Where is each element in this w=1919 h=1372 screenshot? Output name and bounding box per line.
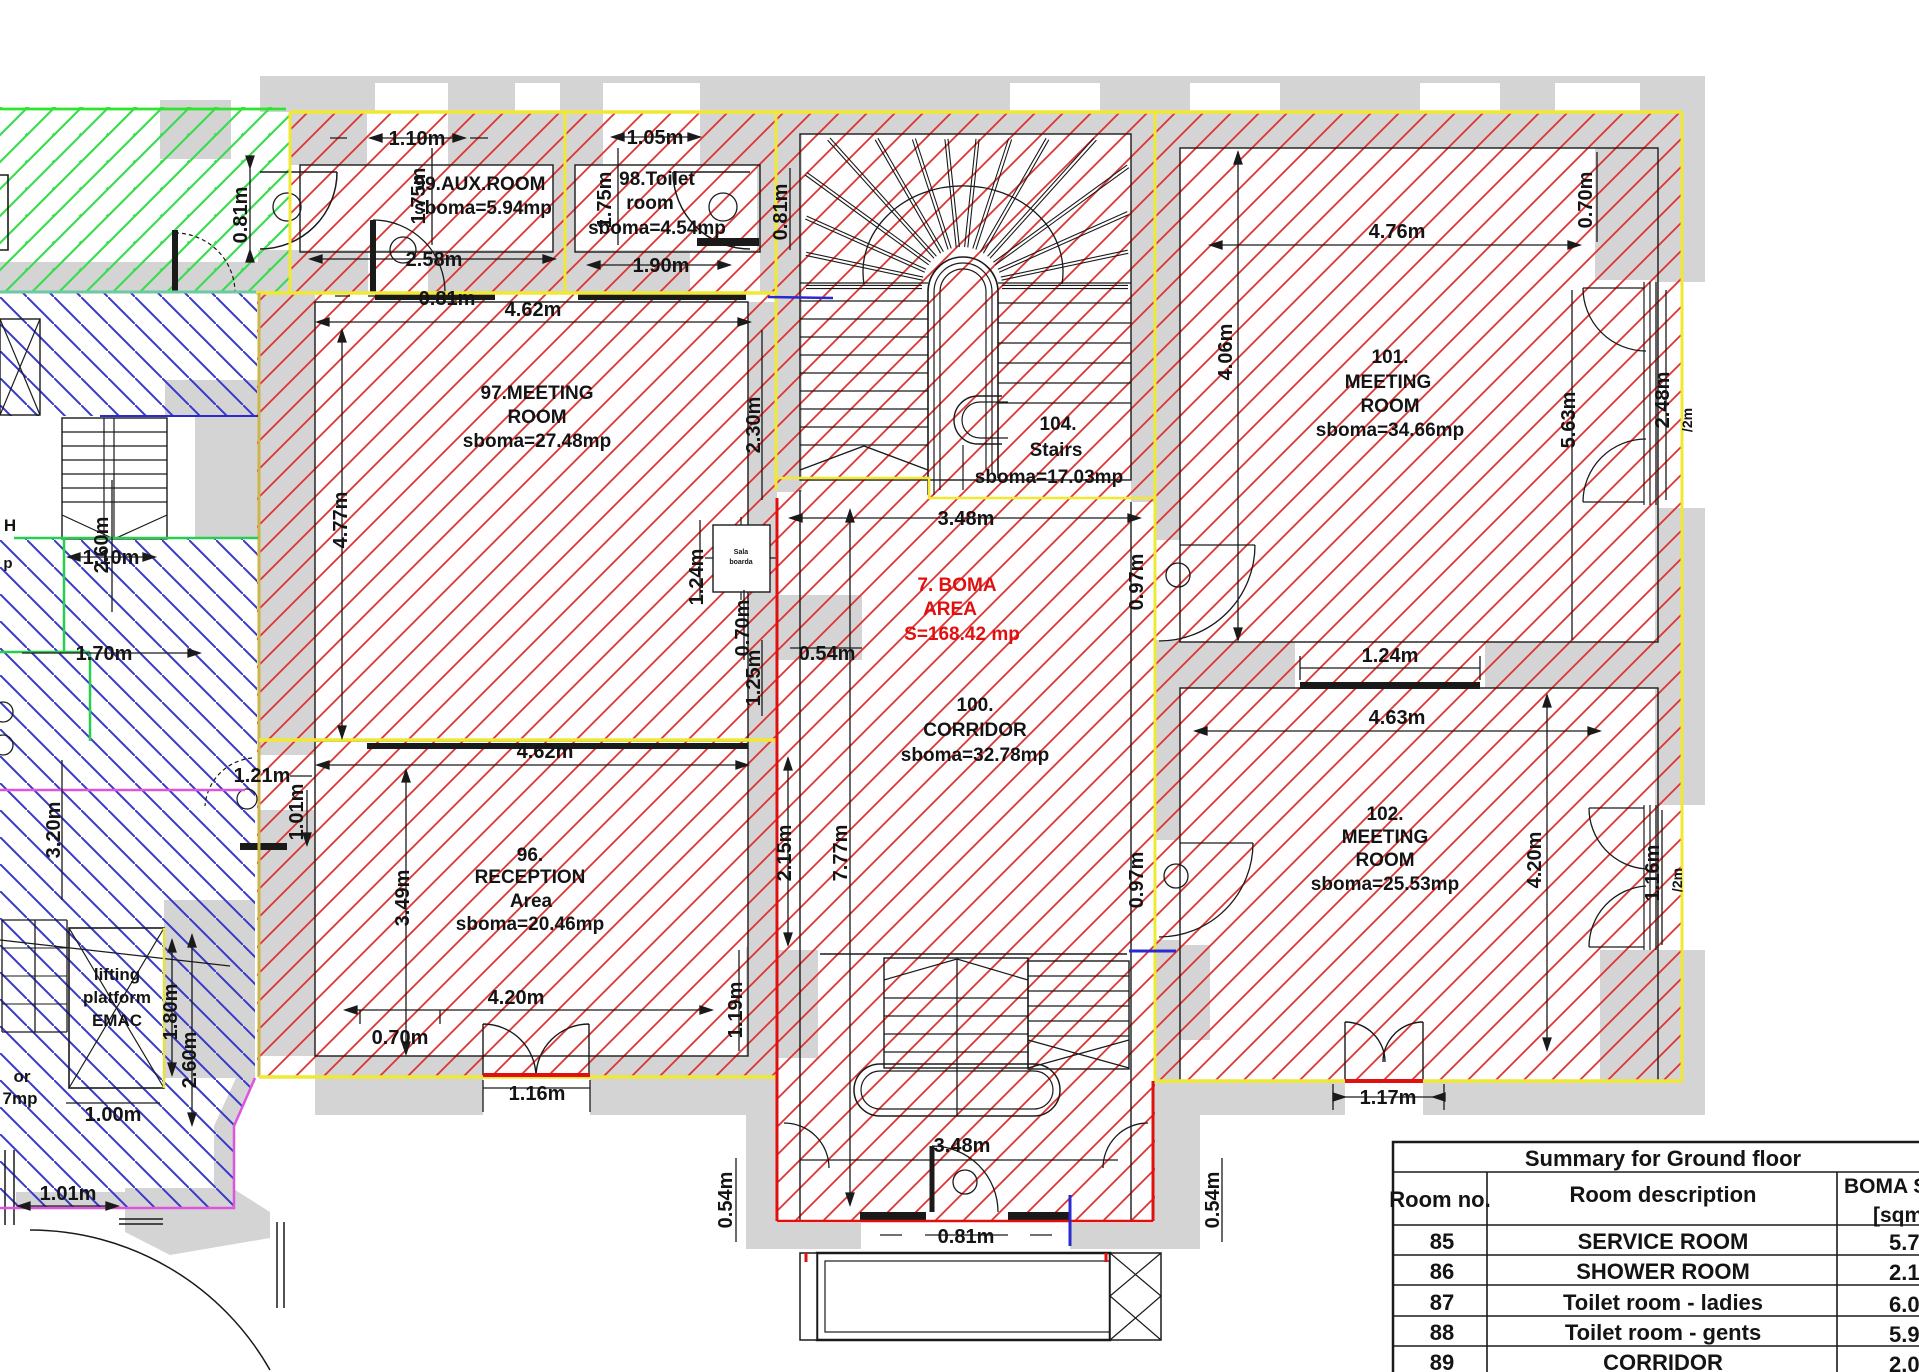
svg-text:5.94: 5.94 xyxy=(1889,1322,1919,1347)
svg-text:2.60m: 2.60m xyxy=(179,1032,201,1089)
svg-text:1.70m: 1.70m xyxy=(76,643,133,665)
svg-text:4.62m: 4.62m xyxy=(517,741,574,763)
svg-text:1.01m: 1.01m xyxy=(286,784,308,841)
svg-text:0.54m: 0.54m xyxy=(1202,1172,1224,1229)
svg-text:0.81m: 0.81m xyxy=(230,187,252,244)
svg-text:0.70m: 0.70m xyxy=(732,600,754,657)
svg-text:1.16m: 1.16m xyxy=(509,1083,566,1105)
svg-text:2.00: 2.00 xyxy=(1889,1352,1919,1372)
svg-text:4.20m: 4.20m xyxy=(488,987,545,1009)
svg-text:sboma=32.78mp: sboma=32.78mp xyxy=(901,745,1049,766)
svg-text:Toilet room - gents: Toilet room - gents xyxy=(1565,1320,1761,1345)
svg-text:2.58m: 2.58m xyxy=(406,249,463,271)
svg-text:4.76m: 4.76m xyxy=(1369,221,1426,243)
svg-text:SERVICE ROOM: SERVICE ROOM xyxy=(1578,1229,1749,1254)
svg-text:0.54m: 0.54m xyxy=(799,643,856,665)
svg-text:96.: 96. xyxy=(517,845,543,866)
svg-text:1.24m: 1.24m xyxy=(1362,645,1419,667)
svg-text:MEETING: MEETING xyxy=(1345,372,1432,393)
svg-text:1.75m: 1.75m xyxy=(594,172,616,229)
svg-text:Sala: Sala xyxy=(734,549,749,556)
svg-text:boarda: boarda xyxy=(729,559,752,566)
svg-text:2.30m: 2.30m xyxy=(743,397,765,454)
svg-text:RECEPTION: RECEPTION xyxy=(475,867,586,888)
svg-text:1.05m: 1.05m xyxy=(627,127,684,149)
svg-text:98.Toilet: 98.Toilet xyxy=(619,169,695,190)
svg-text:3.48m: 3.48m xyxy=(934,1135,991,1157)
svg-text:2.60m: 2.60m xyxy=(91,517,113,574)
svg-text:2.15: 2.15 xyxy=(1889,1260,1919,1285)
svg-text:1.24m: 1.24m xyxy=(686,549,708,606)
svg-text:4.63m: 4.63m xyxy=(1369,707,1426,729)
svg-text:87: 87 xyxy=(1430,1290,1454,1315)
svg-text:7. BOMA: 7. BOMA xyxy=(917,575,996,596)
svg-text:sboma=34.66mp: sboma=34.66mp xyxy=(1316,420,1464,441)
svg-text:2.48m: 2.48m xyxy=(1652,372,1674,429)
svg-text:4.62m: 4.62m xyxy=(505,299,562,321)
svg-text:/2m: /2m xyxy=(1669,868,1685,892)
svg-text:[sqm: [sqm xyxy=(1873,1204,1919,1227)
svg-text:7.77m: 7.77m xyxy=(830,825,852,882)
svg-text:CORRIDOR: CORRIDOR xyxy=(1603,1350,1723,1372)
svg-text:ROOM: ROOM xyxy=(507,407,566,428)
svg-text:Summary for Ground floor: Summary for Ground floor xyxy=(1525,1146,1802,1171)
svg-text:0.54m: 0.54m xyxy=(715,1172,737,1229)
svg-text:sboma=5.94mp: sboma=5.94mp xyxy=(414,198,552,219)
svg-text:97.MEETING: 97.MEETING xyxy=(481,383,594,404)
svg-text:0.97m: 0.97m xyxy=(1126,852,1148,909)
svg-text:1.00m: 1.00m xyxy=(85,1104,142,1126)
svg-text:1.01m: 1.01m xyxy=(40,1183,97,1205)
svg-text:5.63m: 5.63m xyxy=(1558,392,1580,449)
svg-text:101.: 101. xyxy=(1372,347,1409,368)
svg-text:0.70m: 0.70m xyxy=(1575,172,1597,229)
svg-text:0.70m: 0.70m xyxy=(372,1027,429,1049)
svg-text:room: room xyxy=(626,193,674,214)
svg-text:86: 86 xyxy=(1430,1259,1454,1284)
svg-text:5.77: 5.77 xyxy=(1889,1230,1919,1255)
svg-text:88: 88 xyxy=(1430,1320,1454,1345)
svg-text:1.25m: 1.25m xyxy=(743,650,765,707)
svg-text:ROOM: ROOM xyxy=(1355,850,1414,871)
svg-text:Area: Area xyxy=(510,891,553,912)
svg-text:0.81m: 0.81m xyxy=(419,288,476,310)
svg-text:1.75m: 1.75m xyxy=(408,168,430,225)
svg-text:1.21m: 1.21m xyxy=(234,765,291,787)
svg-text:/2m: /2m xyxy=(1679,408,1695,432)
svg-text:Room no.: Room no. xyxy=(1389,1187,1490,1212)
svg-text:0.81m: 0.81m xyxy=(770,184,792,241)
svg-text:102.: 102. xyxy=(1367,804,1404,825)
svg-text:1.19m: 1.19m xyxy=(725,982,747,1039)
svg-text:0.81m: 0.81m xyxy=(938,1226,995,1248)
svg-text:2.15m: 2.15m xyxy=(774,825,796,882)
svg-text:100.: 100. xyxy=(957,695,994,716)
svg-text:3.20m: 3.20m xyxy=(43,802,65,859)
svg-text:Room description: Room description xyxy=(1569,1182,1756,1207)
svg-text:sboma=20.46mp: sboma=20.46mp xyxy=(456,914,604,935)
svg-text:SHOWER ROOM: SHOWER ROOM xyxy=(1576,1259,1750,1284)
svg-text:Stairs: Stairs xyxy=(1030,440,1083,461)
svg-text:4.06m: 4.06m xyxy=(1215,324,1237,381)
svg-text:sboma=17.03mp: sboma=17.03mp xyxy=(975,467,1123,488)
svg-text:EMAC: EMAC xyxy=(92,1011,142,1030)
svg-text:104.: 104. xyxy=(1040,414,1077,435)
svg-text:BOMA Su: BOMA Su xyxy=(1844,1175,1919,1198)
svg-text:89: 89 xyxy=(1430,1350,1454,1372)
svg-text:p: p xyxy=(3,555,12,572)
svg-text:or: or xyxy=(14,1067,31,1086)
svg-text:85: 85 xyxy=(1430,1229,1454,1254)
svg-text:S=168.42 mp: S=168.42 mp xyxy=(904,624,1020,645)
svg-text:3.49m: 3.49m xyxy=(392,870,414,927)
svg-text:AREA: AREA xyxy=(923,599,977,620)
svg-text:1.90m: 1.90m xyxy=(633,255,690,277)
svg-text:6.01: 6.01 xyxy=(1889,1292,1919,1317)
svg-text:1.16m: 1.16m xyxy=(1642,845,1664,902)
svg-text:7mp: 7mp xyxy=(3,1089,38,1108)
svg-text:lifting: lifting xyxy=(94,965,140,984)
svg-text:sboma=25.53mp: sboma=25.53mp xyxy=(1311,874,1459,895)
svg-text:ROOM: ROOM xyxy=(1360,396,1419,417)
svg-text:MEETING: MEETING xyxy=(1342,827,1429,848)
svg-text:0.97m: 0.97m xyxy=(1126,554,1148,611)
svg-text:1.10m: 1.10m xyxy=(389,128,446,150)
svg-text:1.17m: 1.17m xyxy=(1360,1087,1417,1109)
svg-text:sboma=27.48mp: sboma=27.48mp xyxy=(463,431,611,452)
svg-text:3.48m: 3.48m xyxy=(938,508,995,530)
svg-text:H: H xyxy=(4,516,16,535)
svg-text:99.AUX.ROOM: 99.AUX.ROOM xyxy=(415,174,546,195)
svg-text:CORRIDOR: CORRIDOR xyxy=(923,720,1027,741)
svg-text:platform: platform xyxy=(83,988,151,1007)
svg-text:4.20m: 4.20m xyxy=(1524,832,1546,889)
svg-text:4.77m: 4.77m xyxy=(330,492,352,549)
svg-text:Toilet room - ladies: Toilet room - ladies xyxy=(1563,1290,1763,1315)
